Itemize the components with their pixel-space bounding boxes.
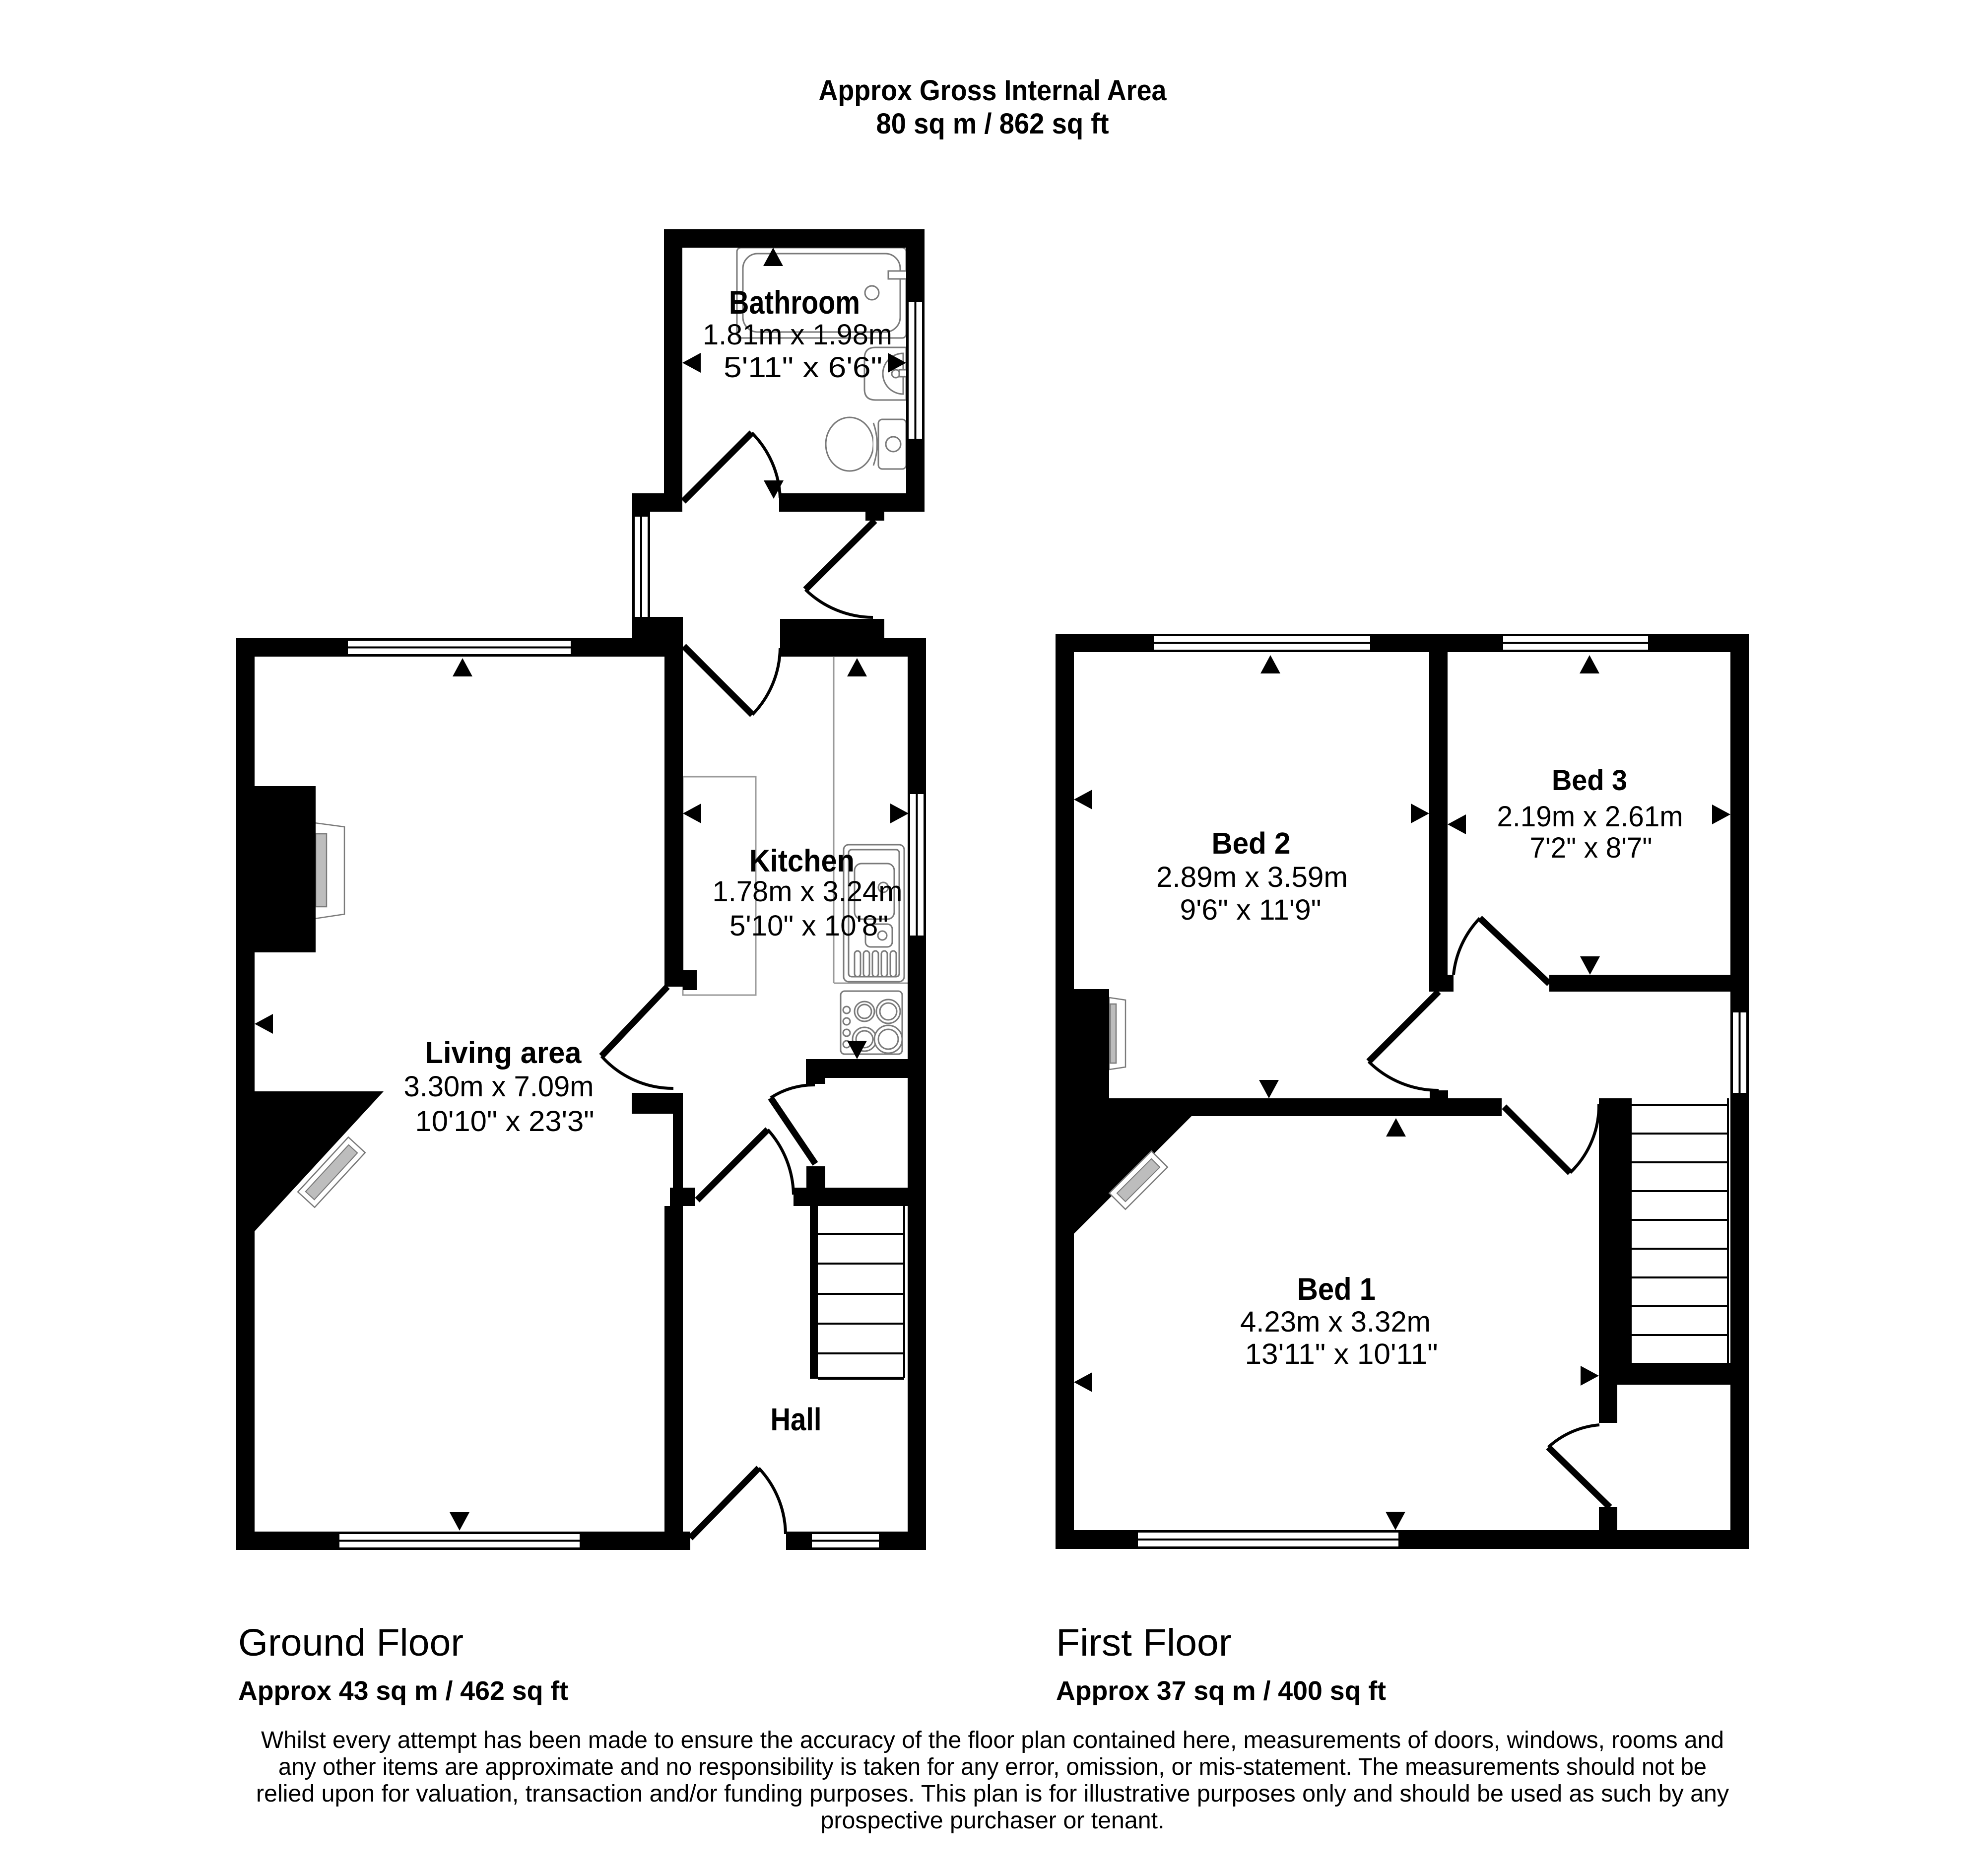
svg-text:1.78m x 3.24m: 1.78m x 3.24m [713, 875, 903, 908]
svg-text:3.30m x 7.09m: 3.30m x 7.09m [404, 1071, 594, 1103]
svg-text:7'2" x 8'7": 7'2" x 8'7" [1530, 832, 1653, 864]
svg-text:prospective purchaser or tenan: prospective purchaser or tenant. [821, 1807, 1165, 1834]
svg-text:Whilst every attempt has been: Whilst every attempt has been made to en… [261, 1727, 1724, 1753]
svg-text:any other items are approximat: any other items are approximate and no r… [278, 1753, 1707, 1780]
svg-text:9'6" x 11'9": 9'6" x 11'9" [1180, 894, 1322, 926]
svg-text:2.89m x 3.59m: 2.89m x 3.59m [1156, 861, 1348, 893]
svg-text:Approx Gross Internal Area: Approx Gross Internal Area [819, 74, 1167, 107]
svg-text:80 sq m / 862 sq ft: 80 sq m / 862 sq ft [876, 108, 1109, 140]
svg-text:relied upon for valuation, tra: relied upon for valuation, transaction a… [256, 1780, 1729, 1807]
svg-text:4.23m x 3.32m: 4.23m x 3.32m [1240, 1306, 1431, 1338]
svg-text:Ground Floor: Ground Floor [238, 1621, 463, 1664]
svg-text:13'11" x 10'11": 13'11" x 10'11" [1245, 1338, 1438, 1370]
svg-text:Bathroom: Bathroom [729, 284, 860, 321]
svg-text:Bed 3: Bed 3 [1552, 764, 1627, 797]
svg-text:10'10" x 23'3": 10'10" x 23'3" [415, 1105, 595, 1138]
svg-text:1.81m x 1.98m: 1.81m x 1.98m [703, 319, 892, 351]
svg-text:Hall: Hall [771, 1402, 822, 1437]
svg-text:Kitchen: Kitchen [749, 844, 855, 878]
svg-text:Approx 37 sq m / 400 sq ft: Approx 37 sq m / 400 sq ft [1056, 1676, 1386, 1706]
svg-text:Bed 2: Bed 2 [1212, 826, 1291, 860]
svg-text:First Floor: First Floor [1056, 1621, 1232, 1664]
svg-text:5'10" x 10'8": 5'10" x 10'8" [729, 910, 888, 942]
svg-text:2.19m x 2.61m: 2.19m x 2.61m [1497, 801, 1683, 833]
svg-text:Approx 43 sq m / 462 sq ft: Approx 43 sq m / 462 sq ft [238, 1676, 568, 1706]
svg-text:5'11" x 6'6": 5'11" x 6'6" [724, 351, 882, 384]
svg-text:Living area: Living area [425, 1036, 582, 1070]
svg-text:Bed 1: Bed 1 [1297, 1272, 1376, 1307]
